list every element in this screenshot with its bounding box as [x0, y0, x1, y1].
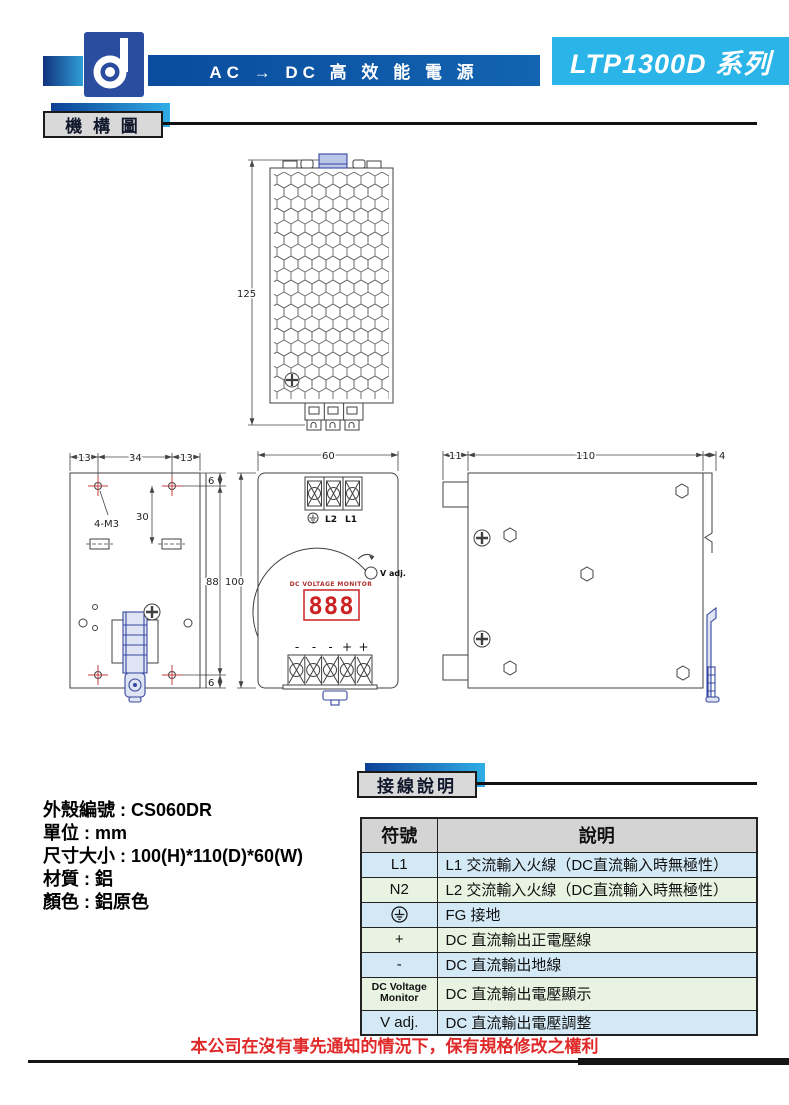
dim-11: 11	[449, 451, 462, 462]
dim-13-left: 13	[78, 453, 91, 464]
spec-color: 顏色 : 鋁原色	[43, 891, 373, 914]
dim-6-bottom: 6	[208, 678, 214, 689]
brand-logo	[84, 32, 144, 97]
row-desc: DC 直流輸出正電壓線	[437, 927, 757, 952]
dim-125: 125	[237, 289, 256, 300]
series-badge: LTP1300D 系列	[552, 37, 789, 85]
dim-60: 60	[322, 451, 335, 462]
table-row: FG 接地	[361, 902, 757, 927]
terminal-l1-label: L1	[345, 515, 357, 525]
wiring-section-tab: 接線說明	[357, 771, 477, 798]
footer-rule-thin	[28, 1060, 578, 1063]
polarity-4: +	[342, 640, 352, 654]
row-desc: DC 直流輸出地線	[437, 952, 757, 977]
vadj-label: V adj.	[380, 569, 406, 578]
din-clip-rear	[112, 604, 160, 702]
wiring-section-title: 接線說明	[377, 772, 457, 797]
row-symbol: DC Voltage Monitor	[361, 977, 437, 1010]
column-header-desc: 說明	[437, 818, 757, 852]
disclaimer-text: 本公司在沒有事先通知的情況下，保有規格修改之權利	[0, 1032, 789, 1057]
row-symbol: -	[361, 952, 437, 977]
terminal-l2-label: L2	[325, 515, 337, 525]
hex-holes	[504, 484, 689, 680]
drawing-top-view: 125	[235, 148, 430, 435]
table-row: L1 L1 交流輸入火線（DC直流輸入時無極性）	[361, 852, 757, 877]
din-clip-front	[323, 691, 347, 705]
row-symbol	[361, 902, 437, 927]
header-banner: AC → DC 高 效 能 電 源	[148, 55, 540, 86]
enclosure-specs: 外殼編號 : CS060DR 單位 : mm 尺寸大小 : 100(H)*110…	[43, 799, 373, 914]
hole-callout: 4-M3	[94, 519, 119, 530]
dim-110: 110	[576, 451, 595, 462]
spec-material: 材質 : 鋁	[43, 868, 373, 891]
din-clip-side	[706, 608, 719, 702]
output-terminal-block	[283, 655, 377, 689]
banner-text: AC → DC 高 效 能 電 源	[209, 58, 478, 83]
terminal-block	[305, 403, 363, 420]
drawing-side-view: 11 110 4	[435, 445, 760, 739]
row-symbol: N2	[361, 877, 437, 902]
row-desc: L2 交流輸入火線（DC直流輸入時無極性）	[437, 877, 757, 902]
spec-dimensions: 尺寸大小 : 100(H)*110(D)*60(W)	[43, 845, 373, 868]
row-symbol: L1	[361, 852, 437, 877]
screw-icon	[144, 604, 160, 620]
display-digits: 888	[308, 592, 354, 620]
d-monogram-icon	[84, 32, 144, 97]
mechanical-section-tab: 機 構 圖	[43, 111, 163, 138]
screw-icon	[285, 373, 299, 387]
polarity-3: -	[328, 640, 332, 654]
spec-unit: 單位 : mm	[43, 822, 373, 845]
row-desc: L1 交流輸入火線（DC直流輸入時無極性）	[437, 852, 757, 877]
vent-honeycomb	[274, 172, 389, 399]
mechanical-section-rule	[163, 122, 757, 125]
screw-icon	[474, 530, 490, 546]
table-row: + DC 直流輸出正電壓線	[361, 927, 757, 952]
earth-ground-icon	[308, 513, 318, 523]
table-header-row: 符號 說明	[361, 818, 757, 852]
dim-4: 4	[719, 451, 725, 462]
polarity-2: -	[312, 640, 316, 654]
datasheet-page: AC → DC 高 效 能 電 源 LTP1300D 系列 機 構 圖 125	[0, 0, 789, 1105]
wiring-section-rule	[477, 782, 757, 785]
wiring-table: 符號 說明 L1 L1 交流輸入火線（DC直流輸入時無極性） N2 L2 交流輸…	[360, 817, 758, 1036]
column-header-symbol: 符號	[361, 818, 437, 852]
table-row: - DC 直流輸出地線	[361, 952, 757, 977]
table-row: N2 L2 交流輸入火線（DC直流輸入時無極性）	[361, 877, 757, 902]
row-symbol: +	[361, 927, 437, 952]
screw-icon	[474, 631, 490, 647]
table-row: DC Voltage Monitor DC 直流輸出電壓顯示	[361, 977, 757, 1010]
dim-88: 88	[206, 577, 219, 588]
spec-part-number: 外殼編號 : CS060DR	[43, 799, 373, 822]
dim-30: 30	[136, 512, 149, 523]
header-accent-rect	[43, 56, 83, 86]
dim-34: 34	[129, 453, 142, 464]
monitor-label: DC VOLTAGE MONITOR	[290, 581, 373, 588]
din-clip-top	[319, 154, 347, 168]
row-desc: DC 直流輸出電壓顯示	[437, 977, 757, 1010]
footer-rule-thick	[578, 1058, 789, 1065]
series-label: LTP1300D 系列	[570, 42, 771, 81]
polarity-1: -	[295, 640, 299, 654]
input-terminal-block	[305, 477, 362, 510]
drawing-front-view: 60 100	[225, 445, 440, 737]
mechanical-section-title: 機 構 圖	[65, 112, 140, 137]
polarity-5: +	[358, 640, 368, 654]
dim-100: 100	[225, 577, 244, 588]
dim-6-top: 6	[208, 476, 214, 487]
earth-ground-icon	[391, 906, 408, 923]
vadj-pot	[365, 567, 377, 579]
drawing-rear-view: 13 34 13 6 88 6 30 4-M3	[60, 445, 238, 725]
dim-13-right: 13	[180, 453, 193, 464]
row-desc: FG 接地	[437, 902, 757, 927]
